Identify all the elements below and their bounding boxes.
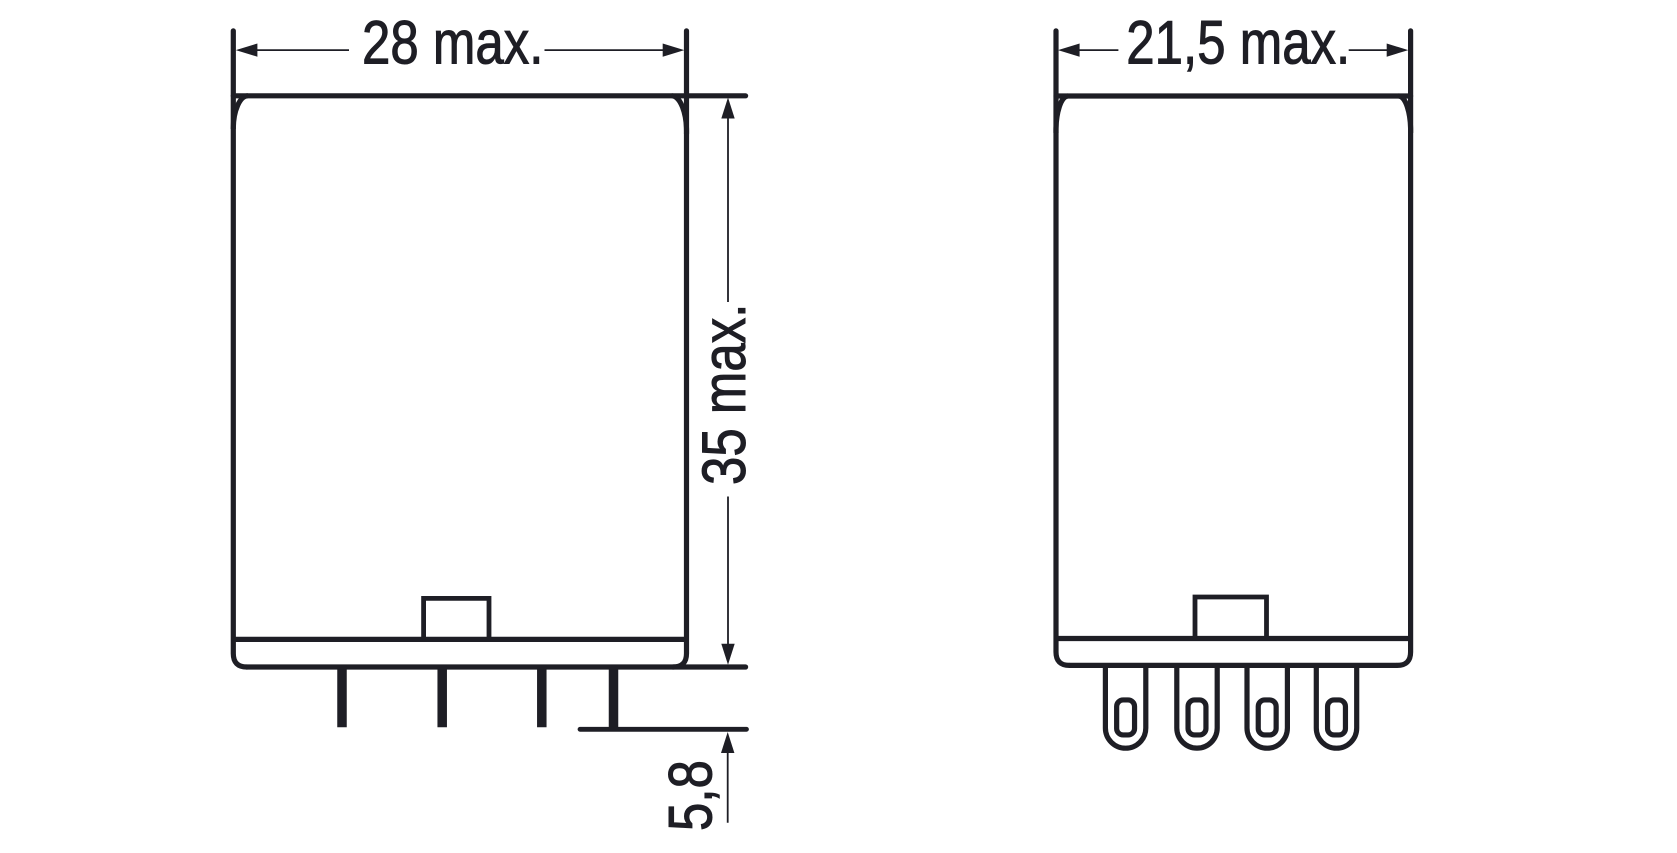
svg-text:5,8: 5,8 <box>656 760 724 831</box>
svg-text:21,5 max.: 21,5 max. <box>1126 8 1350 76</box>
svg-text:35 max.: 35 max. <box>690 304 758 485</box>
svg-text:28 max.: 28 max. <box>362 8 543 76</box>
